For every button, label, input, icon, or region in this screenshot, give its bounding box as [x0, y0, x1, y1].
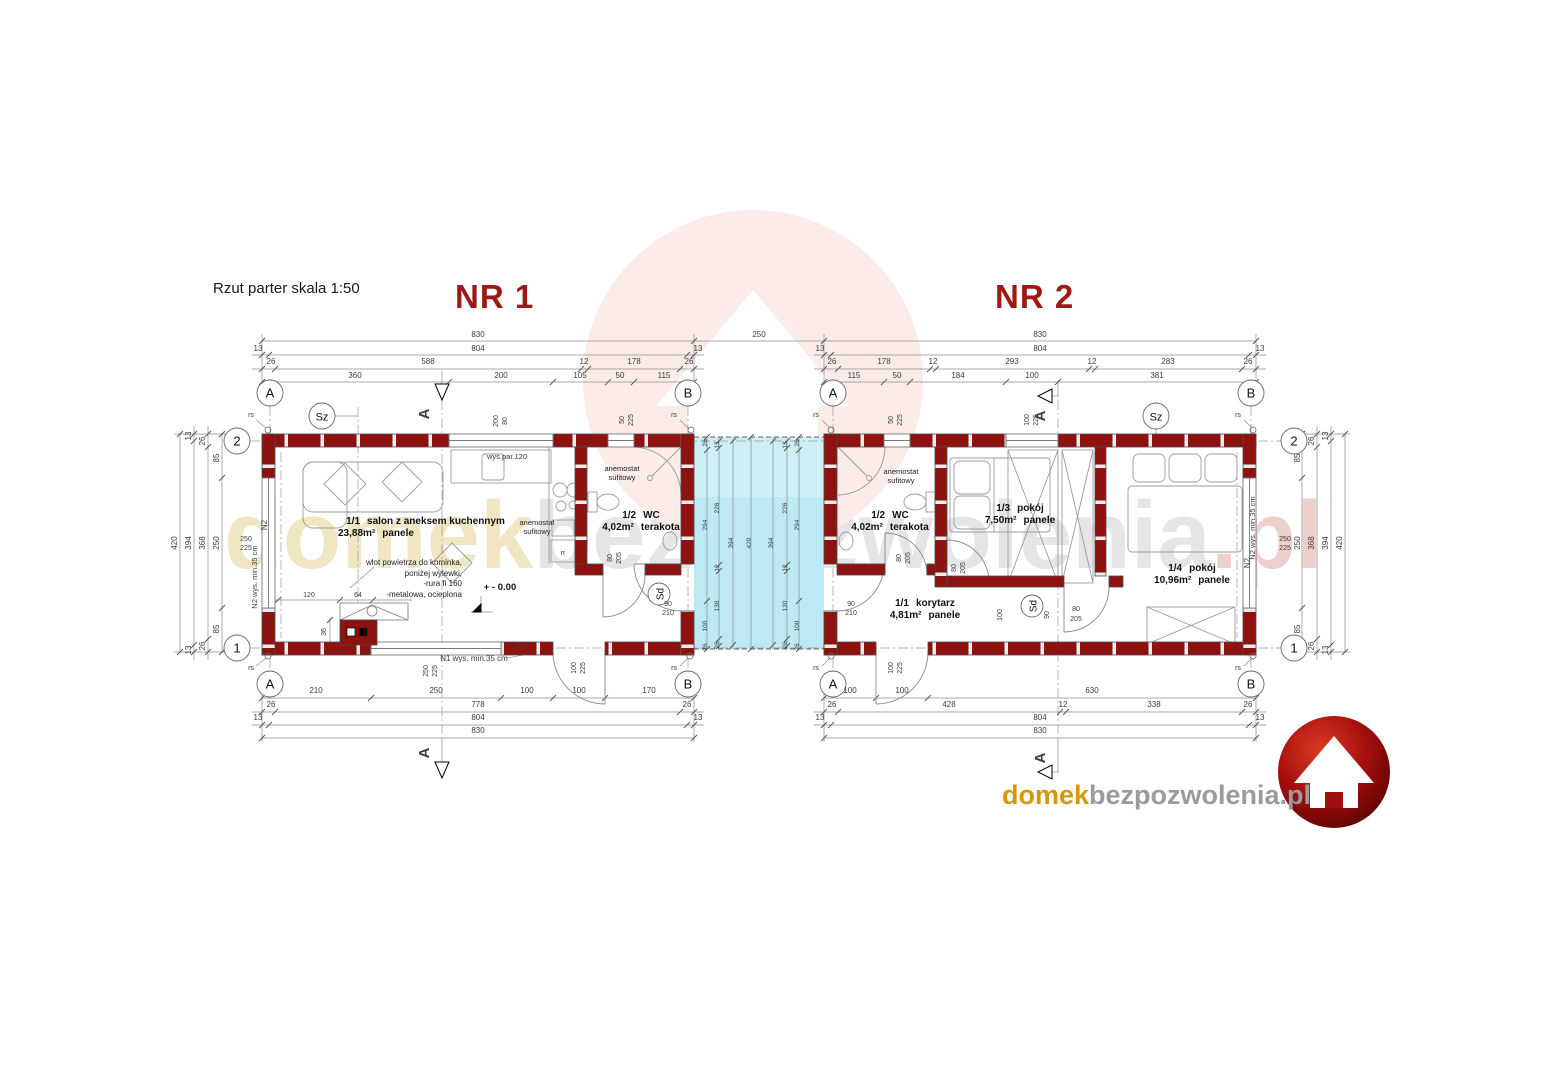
page-title: Rzut parter skala 1:50: [213, 280, 360, 297]
room-label-korytarz: 1/1korytarz 4,81m²panele: [878, 598, 972, 622]
dim-label: 394: [1321, 536, 1330, 550]
section-arrow: [435, 384, 449, 400]
dim-label: 804: [471, 344, 485, 353]
dim-label: 13: [694, 713, 703, 722]
dim-label: 85: [1293, 624, 1302, 633]
grid-marker-B: B: [1238, 671, 1264, 697]
dim-label: 13: [816, 713, 825, 722]
dim-label: 12: [580, 357, 589, 366]
dim-label: rs: [248, 665, 254, 672]
dim-label: N1: [515, 642, 526, 651]
site-logo-text: domekbezpozwolenia.pl: [1002, 780, 1311, 811]
dim-label: 588: [421, 357, 435, 366]
dim-label: 428: [942, 700, 956, 709]
dim-label: 205: [960, 562, 967, 574]
terrace: [694, 437, 824, 649]
dim-label: 100: [572, 686, 586, 695]
dim-label: 394: [184, 536, 193, 550]
grid-marker-A: A: [820, 671, 846, 697]
dim-label: 26: [714, 641, 721, 649]
dim-label: 80: [502, 417, 509, 425]
toilet: [588, 492, 597, 512]
dim-label: rs: [671, 665, 677, 672]
dim-label: N1 wys. min.35 cm: [440, 654, 508, 663]
dim-label: 368: [198, 536, 207, 550]
room-label-wc1: 1/2WC 4,02m²terakota: [598, 510, 684, 534]
grid-marker-Sz: Sz: [1143, 403, 1169, 429]
floor-plan-drawing: ABABABAB2121SzSzSdSd 8301380413265881217…: [0, 0, 1543, 1091]
dim-label: 178: [627, 357, 641, 366]
dim-label: 830: [471, 726, 485, 735]
dim-label: 100: [520, 686, 534, 695]
dim-label: 100: [997, 609, 1004, 621]
dim-label: 100: [895, 686, 909, 695]
dim-label: 226: [714, 502, 721, 513]
fireplace: [340, 603, 408, 645]
dim-label: rs: [1235, 665, 1241, 672]
dim-label: 100: [702, 620, 709, 631]
dim-label: 420: [1335, 536, 1344, 550]
dim-label: 250: [240, 536, 252, 543]
dim-label: 50: [888, 416, 895, 424]
dim-label: 210: [662, 610, 674, 617]
dim-label: 250: [212, 536, 221, 550]
dim-label: 778: [471, 700, 485, 709]
toilet: [926, 492, 935, 512]
dim-label: 381: [1150, 371, 1164, 380]
room-label-salon: 1/1salon z aneksem kuchennym 23,88m²pane…: [338, 516, 513, 540]
dim-label: 13: [254, 713, 263, 722]
svg-text:2: 2: [233, 434, 240, 449]
dim-label: 294: [794, 519, 801, 530]
dim-label: 85: [212, 624, 221, 633]
dim-label: 210: [309, 686, 323, 695]
dim-label: 250: [752, 330, 766, 339]
dim-label: 26: [198, 641, 207, 650]
dim-label: 90: [1044, 611, 1051, 619]
grid-marker-A: A: [257, 671, 283, 697]
dim-label: 13: [1321, 431, 1330, 440]
dim-label: 294: [702, 519, 709, 530]
grid-marker-Sd: Sd: [1021, 595, 1043, 617]
dim-label: 50: [616, 371, 625, 380]
dim-label: 120: [303, 592, 315, 599]
dim-label: 85: [212, 453, 221, 462]
dim-label: 26: [1307, 436, 1316, 445]
svg-text:Sd: Sd: [656, 588, 667, 600]
dim-label: 26: [782, 641, 789, 649]
dim-label: 170: [642, 686, 656, 695]
section-arrow: [435, 762, 449, 778]
dim-label: 225: [1279, 545, 1291, 552]
grid-marker-B: B: [675, 380, 701, 406]
double-bed: [1128, 486, 1242, 552]
svg-text:1: 1: [233, 641, 240, 656]
dim-label: 293: [1005, 357, 1019, 366]
dim-label: 26: [683, 700, 692, 709]
dim-label: 205: [905, 552, 912, 564]
dim-label: 12: [1059, 700, 1068, 709]
dim-label: 26: [702, 643, 709, 651]
dim-label: 13: [1321, 645, 1330, 654]
dim-label: 804: [1033, 713, 1047, 722]
dim-label: rs: [813, 665, 819, 672]
dim-label: 200: [494, 371, 508, 380]
grid-marker-2: 2: [1281, 428, 1307, 454]
room-label-pokoj3: 1/3pokój 7,50m²panele: [975, 503, 1065, 527]
unit1-title: NR 1: [455, 278, 534, 316]
dim-label: 200: [493, 415, 500, 427]
svg-text:1: 1: [1290, 641, 1297, 656]
dim-label: 394: [768, 537, 775, 548]
dim-label: 205: [616, 552, 623, 564]
dim-label: N2 wys. min.35 cm: [1248, 496, 1257, 559]
svg-text:Sz: Sz: [1150, 412, 1163, 424]
dim-label: 13: [1256, 713, 1265, 722]
dim-label: 115: [658, 371, 671, 380]
dim-label: 26: [794, 439, 801, 447]
dim-label: rs: [1235, 412, 1241, 419]
dim-label: 338: [1147, 700, 1161, 709]
dim-label: 225: [580, 662, 587, 674]
floor-plan-page: domekbezpozwolenia.pl: [0, 0, 1543, 1091]
svg-text:B: B: [1247, 386, 1256, 401]
dim-label: 50: [619, 416, 626, 424]
chimney-note: wlot powietrza do kominka, poniżej wylew…: [318, 558, 462, 600]
dim-label: 130: [782, 600, 789, 611]
site-logo-icon: [1278, 716, 1390, 828]
window: [884, 434, 910, 447]
dim-label: 13: [184, 431, 193, 440]
dim-label: 80: [1072, 606, 1080, 613]
dim-label: A: [1032, 410, 1049, 421]
grid-marker-1: 1: [224, 635, 250, 661]
dim-label: 184: [951, 371, 965, 380]
dim-label: 85: [1293, 453, 1302, 462]
dim-label: rs: [671, 412, 677, 419]
section-arrow: [1038, 389, 1052, 403]
svg-text:Sz: Sz: [316, 412, 329, 424]
washbasin: [663, 532, 677, 550]
dim-label: 13: [184, 645, 193, 654]
dim-label: 394: [728, 537, 735, 548]
dim-label: 804: [471, 713, 485, 722]
dim-label: 12: [929, 357, 938, 366]
grid-marker-B: B: [1238, 380, 1264, 406]
sofa: [303, 462, 443, 512]
dim-label: A: [1032, 752, 1049, 763]
dim-label: 100: [843, 686, 857, 695]
dim-label: 830: [471, 330, 485, 339]
svg-text:A: A: [266, 677, 275, 692]
dim-label: 100: [1025, 371, 1039, 380]
dim-label: 90: [664, 601, 672, 608]
dim-label: 26: [828, 357, 837, 366]
dim-label: 630: [1085, 686, 1099, 695]
svg-text:B: B: [684, 677, 693, 692]
dim-label: 100: [794, 620, 801, 631]
dim-label: 26: [685, 357, 694, 366]
dim-label: A: [416, 747, 433, 758]
entrance-door-nr2: [876, 652, 928, 704]
dim-label: 13: [816, 344, 825, 353]
dim-label: 105: [573, 371, 587, 380]
dim-label: 26: [1307, 641, 1316, 650]
dim-label: 26: [702, 439, 709, 447]
dim-label: 100: [888, 662, 895, 674]
dim-label: 100: [571, 662, 578, 674]
dim-label: 250: [423, 665, 430, 677]
dim-label: 12: [782, 564, 789, 572]
anemostat-label: anemostatsufitowy: [592, 464, 652, 482]
grid-marker-Sz: Sz: [309, 403, 335, 429]
dim-label: 26: [198, 436, 207, 445]
window: [449, 434, 553, 447]
svg-text:2: 2: [1290, 434, 1297, 449]
dim-label: 26: [794, 643, 801, 651]
dim-label: 205: [1070, 616, 1082, 623]
grid-marker-B: B: [675, 671, 701, 697]
grid-marker-1: 1: [1281, 635, 1307, 661]
dim-label: 36: [321, 628, 328, 636]
svg-text:A: A: [829, 386, 838, 401]
unit2-title: NR 2: [995, 278, 1074, 316]
dim-label: 283: [1161, 357, 1175, 366]
dim-label: 225: [628, 414, 635, 426]
window: [1006, 434, 1058, 447]
section-arrow: [1038, 765, 1052, 779]
grid-marker-A: A: [257, 380, 283, 406]
dim-label: 804: [1033, 344, 1047, 353]
dim-label: 90: [847, 601, 855, 608]
dim-label: 13: [782, 441, 789, 449]
dim-label: 225: [432, 665, 439, 677]
dim-label: 420: [170, 536, 179, 550]
dim-label: 80: [607, 554, 614, 562]
dim-label: 26: [1244, 700, 1253, 709]
dim-label: 830: [1033, 726, 1047, 735]
dim-label: 13: [694, 344, 703, 353]
dim-label: 12: [1088, 357, 1097, 366]
dim-label: 13: [254, 344, 263, 353]
room4-door-nr2: [1064, 587, 1109, 632]
parapet-height-label: wys.par.120: [476, 452, 538, 461]
level-symbol: [473, 604, 481, 612]
dim-label: N2 wys. min.35 cm: [250, 545, 259, 608]
dim-label: 178: [877, 357, 891, 366]
washbasin: [839, 532, 853, 550]
grid-marker-A: A: [820, 380, 846, 406]
dim-label: A: [416, 408, 433, 419]
dim-label: 250: [1293, 536, 1302, 550]
wc-door-nr1: [603, 575, 645, 617]
dim-label: 13: [1256, 344, 1265, 353]
dim-label: 100: [1024, 414, 1031, 426]
svg-text:B: B: [1247, 677, 1256, 692]
room-label-wc2: 1/2WC 4,02m²terakota: [845, 510, 935, 534]
dim-label: 13: [714, 441, 721, 449]
dim-label: 26: [267, 357, 276, 366]
dim-label: 360: [348, 371, 362, 380]
dim-label: 830: [1033, 330, 1047, 339]
dim-label: 115: [848, 371, 861, 380]
dim-label: 26: [828, 700, 837, 709]
dim-label: 50: [893, 371, 902, 380]
dim-label: rs: [248, 412, 254, 419]
svg-text:B: B: [684, 386, 693, 401]
anemostat-label: anemostatsufitowy: [871, 467, 931, 485]
svg-text:A: A: [266, 386, 275, 401]
dim-label: 250: [1279, 536, 1291, 543]
dim-label: 80: [951, 564, 958, 572]
dim-label: 226: [782, 502, 789, 513]
dim-label: 26: [1244, 357, 1253, 366]
anemostat-label: anemostatsufitowy: [507, 518, 567, 536]
svg-text:A: A: [829, 677, 838, 692]
dim-label: 368: [1307, 536, 1316, 550]
dim-label: 210: [845, 610, 857, 617]
dim-label: 420: [746, 537, 753, 548]
level-mark: + - 0.00: [468, 582, 532, 593]
dim-label: 130: [714, 600, 721, 611]
svg-text:Sd: Sd: [1029, 600, 1040, 612]
dim-label: 250: [429, 686, 443, 695]
dim-label: 12: [714, 564, 721, 572]
dim-label: 225: [897, 414, 904, 426]
dim-label: 80: [896, 554, 903, 562]
dim-label: rr: [561, 550, 566, 557]
room-label-pokoj4: 1/4pokój 10,96m²panele: [1140, 563, 1244, 587]
window: [262, 478, 275, 608]
entrance-door-nr1: [553, 652, 605, 704]
dim-label: 225: [897, 662, 904, 674]
window: [608, 434, 634, 447]
dim-label: 26: [267, 700, 276, 709]
dim-label: N2: [260, 519, 269, 530]
dim-label: rs: [813, 412, 819, 419]
grid-marker-2: 2: [224, 428, 250, 454]
